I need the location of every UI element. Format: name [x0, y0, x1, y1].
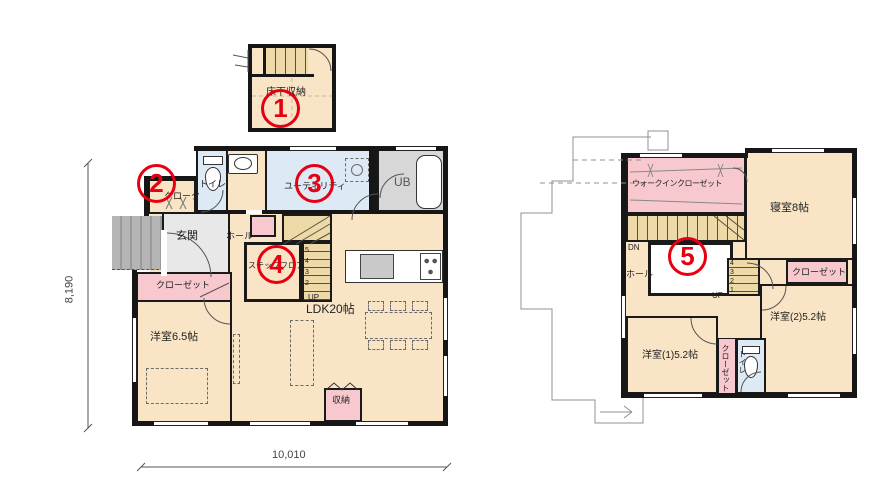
western-room-65: [136, 300, 232, 424]
entrance-label: 玄関: [176, 231, 198, 242]
window: [443, 356, 448, 396]
dining-chair: [368, 301, 384, 311]
dimension-width-label: 10,010: [272, 450, 306, 461]
attic-up-label: UP: [712, 292, 723, 300]
dining-chair: [368, 340, 384, 350]
dining-table: [365, 312, 432, 339]
stairs1-winder: [282, 214, 332, 242]
wall-utility-bath: [369, 146, 377, 212]
toilet1-tank: [203, 156, 223, 165]
western-room2-label: 洋室(2)5.2帖: [770, 313, 826, 323]
ldk-label: LDK20帖: [306, 303, 355, 315]
window: [621, 296, 626, 338]
washer-drum: [351, 164, 363, 176]
window: [356, 421, 408, 426]
attic-digit: 3: [730, 269, 734, 276]
kitchen-sink: [360, 254, 394, 279]
porch: [112, 216, 164, 270]
attic-digit: 2: [730, 278, 734, 285]
toilet1-label: トイレ: [199, 180, 226, 189]
stair-digit: 2: [305, 280, 309, 287]
dining-chair: [390, 340, 406, 350]
unit-bath-label: UB: [394, 176, 411, 188]
window: [396, 146, 436, 151]
entry-door-opening: [161, 230, 167, 276]
window: [640, 153, 682, 158]
window: [852, 308, 857, 354]
dimension-height-label: 8,190: [64, 276, 75, 304]
window: [154, 421, 208, 426]
marker-4: 4: [257, 245, 296, 284]
western-room1-label: 洋室(1)5.2帖: [642, 351, 698, 361]
closet2b-label: クローゼット: [721, 344, 729, 392]
window: [644, 393, 702, 398]
western-room-2: [760, 284, 855, 394]
underfloor-stairs: [266, 48, 308, 74]
window: [443, 298, 448, 340]
wall2-right: [852, 148, 857, 398]
floor-plan-canvas: 床下収納: [0, 0, 887, 487]
dining-chair: [390, 301, 406, 311]
storage-room: [324, 388, 362, 422]
tv-board: [233, 334, 240, 384]
attic-digit: 4: [730, 260, 734, 267]
marker-1: 1: [261, 89, 300, 128]
stair-digit: 4: [305, 258, 309, 265]
wic-label: ウォークインクローゼット: [632, 180, 722, 188]
dining-chair: [412, 301, 428, 311]
dining-chair: [412, 340, 428, 350]
marker-5: 5: [668, 237, 707, 276]
window: [788, 393, 840, 398]
stair-digit: 5: [305, 247, 309, 254]
window: [772, 148, 824, 153]
kitchen-stove: [420, 253, 441, 280]
opening-hall-nook: [246, 210, 262, 214]
closet2a-label: クローゼット: [792, 268, 846, 277]
hall1-label: ホール: [226, 232, 253, 241]
stair-digit: 3: [305, 269, 309, 276]
toilet2-label: トイレ: [738, 350, 746, 374]
washbasin-bowl: [234, 157, 252, 170]
floor2-mask-top: [617, 144, 745, 153]
western-room-label: 洋室6.5帖: [150, 332, 198, 343]
bedroom-label: 寝室8帖: [770, 203, 809, 214]
storage-label: 収納: [332, 396, 350, 405]
window: [290, 146, 336, 151]
underfloor-wall2: [263, 48, 266, 74]
underfloor-wall: [252, 74, 314, 77]
stairs2-dn-label: DN: [628, 244, 640, 252]
sofa: [290, 320, 314, 386]
window: [250, 421, 310, 426]
wall-wetband-bottom: [196, 210, 448, 214]
window: [132, 318, 137, 382]
hall2-label: ホール: [626, 270, 653, 279]
marker-3: 3: [295, 164, 334, 203]
marker-2: 2: [137, 164, 176, 203]
closet1-label: クローゼット: [156, 281, 210, 290]
window: [852, 198, 857, 244]
attic-digit: 1: [730, 287, 734, 294]
vanity-counter: [250, 215, 276, 237]
bed-65: [146, 368, 208, 404]
stairs1-up-label: UP: [308, 294, 319, 302]
bathtub: [416, 155, 442, 209]
